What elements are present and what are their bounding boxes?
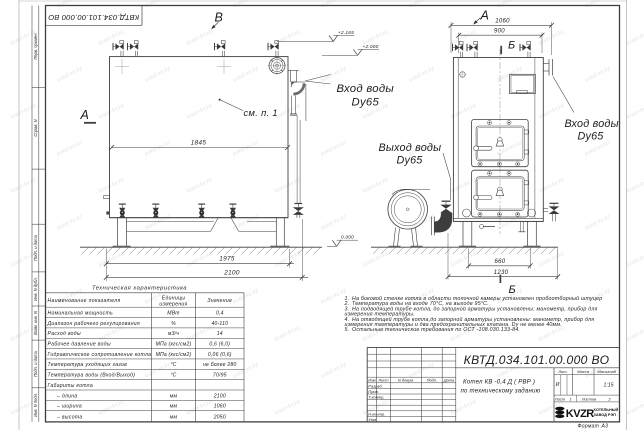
svg-text:1060: 1060 xyxy=(214,404,226,410)
svg-text:Котел КВ -0,4 Д ( РВР ): Котел КВ -0,4 Д ( РВР ) xyxy=(463,378,535,385)
svg-text:КВТД.034.101.00.000 ВО: КВТД.034.101.00.000 ВО xyxy=(48,13,139,22)
svg-text:Расход воды: Расход воды xyxy=(48,331,81,337)
svg-text:Масштаб: Масштаб xyxy=(597,369,616,374)
svg-text:Инв. N дубл.: Инв. N дубл. xyxy=(33,277,38,301)
svg-text:Рабочее давление воды: Рабочее давление воды xyxy=(48,342,111,348)
svg-text:Листов: Листов xyxy=(581,396,597,401)
svg-text:Вход воды: Вход воды xyxy=(565,118,619,130)
svg-text:Подп. и дата: Подп. и дата xyxy=(33,350,38,376)
svg-text:по техническому заданию: по техническому заданию xyxy=(461,388,541,395)
svg-text:А: А xyxy=(480,8,489,22)
svg-text:– высота: – высота xyxy=(56,414,82,420)
svg-text:Справ. N: Справ. N xyxy=(33,119,38,136)
svg-text:КОТЕЛЬНЫЙ: КОТЕЛЬНЫЙ xyxy=(594,408,619,412)
svg-text:Выход воды: Выход воды xyxy=(379,142,442,154)
svg-text:Разраб.: Разраб. xyxy=(368,383,382,388)
svg-text:Dy65: Dy65 xyxy=(397,155,424,167)
svg-text:Лист: Лист xyxy=(554,396,566,401)
svg-text:Н.контр.: Н.контр. xyxy=(368,411,385,416)
svg-text:мм: мм xyxy=(170,393,178,399)
svg-text:Лист: Лист xyxy=(377,377,389,382)
svg-text:Dy65: Dy65 xyxy=(352,96,380,108)
svg-text:660: 660 xyxy=(495,259,506,265)
svg-text:5.: 5. xyxy=(345,327,350,333)
svg-text:Пров.: Пров. xyxy=(368,389,379,394)
svg-text:Диапазон рабочего регулировани: Диапазон рабочего регулирования xyxy=(47,321,140,327)
svg-text:40-110: 40-110 xyxy=(211,321,228,327)
svg-text:900: 900 xyxy=(494,28,505,34)
svg-text:°С: °С xyxy=(170,362,176,368)
svg-text:Изм: Изм xyxy=(368,377,376,382)
svg-text:Подп. и дата: Подп. и дата xyxy=(33,234,38,260)
svg-text:ЗАВОД РЭП: ЗАВОД РЭП xyxy=(594,413,617,417)
svg-text:14: 14 xyxy=(217,331,223,337)
svg-text:И: И xyxy=(556,382,560,388)
svg-text:Значение: Значение xyxy=(207,298,232,304)
svg-text:Дата: Дата xyxy=(443,377,455,382)
svg-text:2100: 2100 xyxy=(213,393,226,399)
svg-text:Утв.: Утв. xyxy=(368,417,377,422)
svg-text:не более 280: не более 280 xyxy=(203,362,237,368)
svg-text:0.000: 0.000 xyxy=(341,235,354,241)
svg-text:Б: Б xyxy=(508,39,515,51)
svg-text:70/95: 70/95 xyxy=(213,373,227,379)
svg-text:1845: 1845 xyxy=(191,140,207,147)
svg-text:мм: мм xyxy=(170,414,178,420)
svg-text:Масса: Масса xyxy=(577,369,590,374)
svg-text:Перв. примен.: Перв. примен. xyxy=(33,32,38,59)
svg-text:Температура воды (Вход/Выход): Температура воды (Вход/Выход) xyxy=(48,373,136,379)
svg-text:+2.000: +2.000 xyxy=(363,44,379,50)
svg-text:А3: А3 xyxy=(601,423,609,429)
svg-text:1975: 1975 xyxy=(219,256,235,263)
svg-text:Инв. N подл.: Инв. N подл. xyxy=(33,393,38,417)
svg-text:мм: мм xyxy=(170,404,178,410)
svg-text:1: 1 xyxy=(569,396,571,401)
svg-text:Т.контр.: Т.контр. xyxy=(368,395,384,400)
svg-text:Вход воды: Вход воды xyxy=(337,83,395,95)
svg-text:см. п. 1: см. п. 1 xyxy=(244,108,278,118)
svg-text:Гидравлическое сопротивление к: Гидравлическое сопротивление котла xyxy=(48,352,152,358)
svg-text:0,06 (0,6): 0,06 (0,6) xyxy=(208,352,232,358)
svg-text:В: В xyxy=(215,10,223,24)
svg-text:Габариты котла: Габариты котла xyxy=(48,383,93,389)
svg-text:МВт: МВт xyxy=(167,310,179,316)
svg-text:°С: °С xyxy=(170,373,176,379)
svg-text:Наименование показателя: Наименование показателя xyxy=(48,298,121,304)
svg-text:м3/ч: м3/ч xyxy=(168,331,179,337)
svg-text:Формат: Формат xyxy=(578,423,600,429)
svg-text:KVZR: KVZR xyxy=(566,408,595,420)
svg-text:1060: 1060 xyxy=(495,19,510,25)
svg-text:Лит.: Лит. xyxy=(557,369,567,374)
svg-text:МПа (кгс/см2): МПа (кгс/см2) xyxy=(156,352,192,358)
svg-text:%: % xyxy=(171,321,176,327)
svg-text:1:15: 1:15 xyxy=(603,383,613,389)
svg-text:2050: 2050 xyxy=(213,414,226,420)
svg-text:Взам. инв. N: Взам. инв. N xyxy=(33,311,38,335)
svg-text:2100: 2100 xyxy=(223,269,240,276)
svg-text:N докум.: N докум. xyxy=(398,377,414,382)
svg-text:Техническая характеристика: Техническая характеристика xyxy=(92,286,187,292)
svg-text:0,4: 0,4 xyxy=(216,310,224,316)
svg-text:МПа (кгс/см2): МПа (кгс/см2) xyxy=(156,342,192,348)
svg-text:измерения: измерения xyxy=(159,301,187,307)
svg-text:+2.165: +2.165 xyxy=(338,30,354,36)
svg-text:КВТД.034.101.00.000 ВО: КВТД.034.101.00.000 ВО xyxy=(464,353,610,367)
svg-text:Остальные технические требован: Остальные технические требования по ОСТ … xyxy=(352,327,520,333)
svg-text:Номинальная мощность: Номинальная мощность xyxy=(48,310,114,316)
svg-text:Подп.: Подп. xyxy=(427,377,438,382)
svg-text:– ширина: – ширина xyxy=(56,404,82,410)
svg-text:Температура уходящих газов: Температура уходящих газов xyxy=(48,362,128,368)
svg-text:Dy65: Dy65 xyxy=(578,131,605,143)
svg-text:А: А xyxy=(80,108,89,122)
svg-text:– длина: – длина xyxy=(56,393,78,399)
svg-text:0,6 (6,0): 0,6 (6,0) xyxy=(209,342,230,348)
svg-text:Б: Б xyxy=(509,284,516,296)
